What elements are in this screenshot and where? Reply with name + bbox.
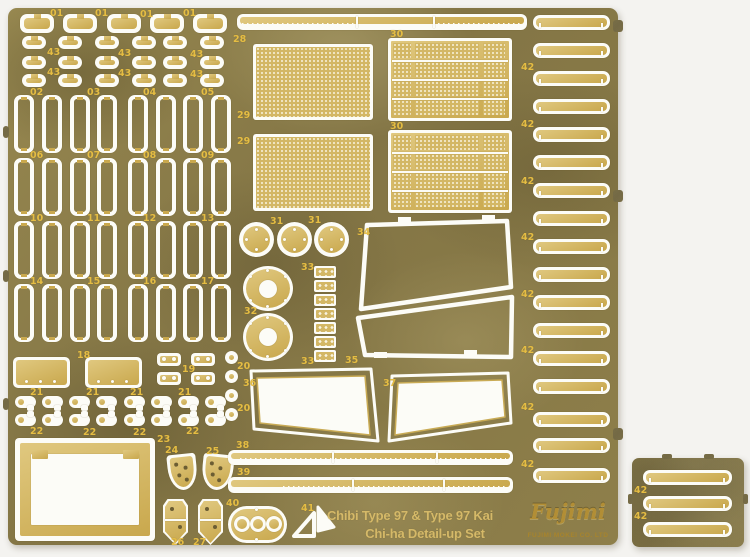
strip-42-tick <box>649 530 651 535</box>
washer-part-20 <box>225 389 238 402</box>
hook-part-21-eye <box>154 399 160 405</box>
strip-42-tick <box>539 303 541 308</box>
strip-42-inner <box>536 326 607 335</box>
clip-part-43-notch <box>172 56 179 61</box>
oval-40-ring-center <box>253 519 263 529</box>
sprue-tab <box>613 428 623 440</box>
strip-part-42 <box>533 183 610 198</box>
panel-part-18 <box>85 357 142 388</box>
grille-30-cell <box>393 173 411 188</box>
part-label-30: 30 <box>390 122 403 131</box>
clip-part-43-notch <box>209 74 216 79</box>
hook-part-22-tail <box>217 411 224 417</box>
frame-part-14 <box>14 284 34 342</box>
mudguard-part-37-ring <box>389 373 511 441</box>
part-label-08: 08 <box>143 151 156 160</box>
part-label-33: 33 <box>301 263 314 272</box>
clip-part-43 <box>200 36 224 49</box>
sprue-tab <box>628 494 633 504</box>
part-label-20: 20 <box>237 404 250 413</box>
part-label-13: 13 <box>201 214 214 223</box>
grille-panel-part-30 <box>388 130 512 213</box>
strip-part-42 <box>643 522 732 537</box>
hook-part-21-eye <box>72 399 78 405</box>
grille-30-cell <box>483 100 505 115</box>
sprue-tab <box>3 270 9 282</box>
clip-part-43 <box>95 56 119 69</box>
part-label-22: 22 <box>83 428 96 437</box>
oval-32-rivet-hole <box>266 316 269 319</box>
ladder-part-33 <box>314 308 336 320</box>
part-label-26: 26 <box>171 538 184 547</box>
strip-42-inner <box>536 158 607 167</box>
clip-part-01-notch <box>121 14 128 19</box>
shield-part-26-slot <box>165 519 186 521</box>
clip-part-43 <box>58 74 82 87</box>
grille-30-slat-line <box>392 98 508 100</box>
strip-42-tick2 <box>723 504 725 509</box>
strip-42-tick <box>539 163 541 168</box>
shield-part-27-hole <box>205 507 209 511</box>
clip-part-43-notch <box>104 36 111 41</box>
sprue-tab <box>662 454 672 459</box>
strip-42-tick2 <box>601 135 603 140</box>
oval-32-center-hole <box>259 328 277 346</box>
part-label-40: 40 <box>226 499 239 508</box>
ladder-33-holes <box>316 296 334 304</box>
grille-30-cell <box>415 81 479 96</box>
oval-plate-part-32 <box>243 266 293 311</box>
oval-32-rivet-hole <box>266 269 269 272</box>
strip-42-tick <box>539 275 541 280</box>
hook-part-22-tail <box>190 411 197 417</box>
clip-19-hole <box>196 376 200 380</box>
part-label-42: 42 <box>521 403 534 412</box>
panel-18-rivet <box>125 380 128 383</box>
part-label-39: 39 <box>237 468 250 477</box>
hook-part-22-tail <box>163 411 170 417</box>
hook-part-21 <box>151 396 172 408</box>
clip-part-43-notch <box>104 56 111 61</box>
frame-part-06 <box>128 158 148 216</box>
disc-31-hole <box>265 238 268 241</box>
sprue-tab <box>704 454 714 459</box>
clip-part-01-inner <box>67 18 93 29</box>
main-fret-sheet: Chibi Type 97 & Type 97 Kai Chi-ha Detai… <box>8 8 618 545</box>
strip-42-tick2 <box>601 446 603 451</box>
grille-30-cell <box>483 154 505 169</box>
clip-19-hole2 <box>206 357 210 361</box>
frame-part-10 <box>211 221 231 279</box>
set-title-line2: Chi-ha Detail-up Set <box>350 526 500 541</box>
fender-35-notch <box>374 352 387 358</box>
washer-20-center <box>229 412 234 417</box>
ladder-part-33 <box>314 350 336 362</box>
part-label-12: 12 <box>143 214 156 223</box>
fender-35-notch <box>464 350 477 356</box>
grille-30-cell <box>415 43 479 58</box>
grille-30-cell <box>393 192 411 207</box>
clip-part-43-notch <box>31 36 38 41</box>
strip-42-inner <box>536 102 607 111</box>
fan-part-24 <box>166 453 199 492</box>
grille-30-cell <box>415 135 479 150</box>
part-label-35: 35 <box>345 356 358 365</box>
clip-part-01-inner <box>197 18 223 29</box>
clip-part-43-notch <box>209 56 216 61</box>
part-label-28: 28 <box>233 35 246 44</box>
strip-42-tick <box>649 478 651 483</box>
grille-30-cell <box>483 62 505 77</box>
saw-strip-part-38-teeth <box>240 458 506 463</box>
part-label-25: 25 <box>206 447 219 456</box>
hook-part-22 <box>69 414 90 426</box>
strip-42-inner <box>536 270 607 279</box>
part-label-42: 42 <box>634 486 647 495</box>
clip-part-43 <box>58 36 82 49</box>
ladder-part-33 <box>314 322 336 334</box>
saw-strip-part-28-teeth <box>433 23 522 28</box>
hook-part-22-tail <box>54 411 61 417</box>
oval-32-rivet-hole <box>266 305 269 308</box>
part-label-14: 14 <box>30 277 43 286</box>
photo-etch-set-photo: Chibi Type 97 & Type 97 Kai Chi-ha Detai… <box>0 0 750 557</box>
saw-strip-part-39-divider <box>352 479 354 491</box>
grille-30-slat-line <box>392 171 508 173</box>
saw-strip-part-28-divider <box>433 16 435 28</box>
frame-part-14 <box>156 284 176 342</box>
clip-19-hole <box>162 376 166 380</box>
saw-strip-part-28 <box>237 14 527 30</box>
part-label-42: 42 <box>521 460 534 469</box>
grille-30-cell <box>483 173 505 188</box>
hook-part-22-tail <box>108 411 115 417</box>
part-label-43: 43 <box>47 68 60 77</box>
strip-42-tick2 <box>601 387 603 392</box>
frame-part-06 <box>42 158 62 216</box>
hook-part-22-eye <box>99 417 105 423</box>
part-label-05: 05 <box>201 88 214 97</box>
clip-part-43 <box>163 36 187 49</box>
clip-part-43 <box>132 36 156 49</box>
clip-part-01-notch <box>164 14 171 19</box>
mudguard-part-36-ring <box>251 369 378 441</box>
part-label-22: 22 <box>133 428 146 437</box>
strip-42-inner <box>646 473 729 482</box>
hook-part-22-tail <box>27 411 34 417</box>
grille-30-cell <box>415 100 479 115</box>
clip-part-43 <box>22 56 46 69</box>
grille-30-slat-line <box>392 190 508 192</box>
grille-panel-part-30 <box>388 38 512 121</box>
strip-42-tick2 <box>723 478 725 483</box>
hook-part-21 <box>42 396 63 408</box>
disc-31-hole <box>245 238 248 241</box>
part-label-43: 43 <box>190 50 203 59</box>
strip-42-inner <box>536 74 607 83</box>
strip-42-tick <box>539 476 541 481</box>
grille-30-cell <box>483 135 505 150</box>
sprue-tab <box>3 398 9 410</box>
small-fret-sheet: 4242 <box>632 458 744 547</box>
part-label-30: 30 <box>390 30 403 39</box>
part-label-18: 18 <box>77 351 90 360</box>
ladder-33-holes <box>316 352 334 360</box>
ladder-part-33 <box>314 266 336 278</box>
grille-30-slat-line <box>392 79 508 81</box>
hook-part-22 <box>151 414 172 426</box>
hatch-23-hinge-tab <box>32 450 48 459</box>
clip-part-43-notch <box>67 56 74 61</box>
clip-part-43-notch <box>172 36 179 41</box>
strip-42-tick2 <box>601 219 603 224</box>
grille-30-cell <box>393 43 411 58</box>
clip-19-hole <box>162 357 166 361</box>
part-label-43: 43 <box>118 69 131 78</box>
strip-part-42 <box>533 71 610 86</box>
strip-part-42 <box>643 470 732 485</box>
strip-part-42 <box>533 15 610 30</box>
clip-part-43 <box>95 74 119 87</box>
part-label-36: 36 <box>243 379 256 388</box>
strip-part-42 <box>533 468 610 483</box>
strip-part-42 <box>533 239 610 254</box>
clip-part-43-notch <box>67 36 74 41</box>
grille-30-cell <box>483 81 505 96</box>
part-label-04: 04 <box>143 88 156 97</box>
frame-part-02 <box>14 95 34 153</box>
fujimi-company-caption: FUJIMI MOKEI CO. LTD <box>520 532 616 539</box>
disc-31-hole <box>330 248 333 251</box>
fujimi-logo: Fujimi <box>524 499 612 524</box>
part-label-42: 42 <box>521 346 534 355</box>
strip-42-tick2 <box>601 420 603 425</box>
strip-42-inner <box>536 415 607 424</box>
frame-part-02 <box>156 95 176 153</box>
part-label-42: 42 <box>521 177 534 186</box>
hook-part-22-eye <box>127 417 133 423</box>
strip-42-tick2 <box>601 51 603 56</box>
clip-part-43 <box>95 36 119 49</box>
disc-31-hole <box>303 238 306 241</box>
sprue-tab <box>613 190 623 202</box>
strip-42-inner <box>536 18 607 27</box>
mudguard-part-36-cutout <box>257 376 370 435</box>
clip-19-hole <box>196 357 200 361</box>
clip-part-01-notch <box>77 14 84 19</box>
disc-part-31 <box>277 222 312 257</box>
strip-part-42 <box>533 99 610 114</box>
clip-part-01-inner <box>154 18 180 29</box>
part-label-33: 33 <box>301 357 314 366</box>
clip-part-43 <box>132 56 156 69</box>
clip-part-01 <box>107 14 141 33</box>
frame-part-06 <box>70 158 90 216</box>
part-label-23: 23 <box>157 435 170 444</box>
clip-part-01-inner <box>24 18 50 29</box>
shield-part-27-slot <box>200 519 221 521</box>
strip-42-tick <box>539 107 541 112</box>
shield-part-26-hole <box>170 507 174 511</box>
ladder-33-holes <box>316 268 334 276</box>
clip-part-43-notch <box>141 56 148 61</box>
clip-part-43 <box>132 74 156 87</box>
strip-42-tick <box>539 420 541 425</box>
washer-20-center <box>229 355 234 360</box>
clip-part-01 <box>63 14 97 33</box>
strip-42-inner <box>646 499 729 508</box>
part-label-42: 42 <box>521 63 534 72</box>
hook-part-22-eye <box>45 417 51 423</box>
sprue-tab <box>3 126 9 138</box>
part-label-01: 01 <box>95 9 108 18</box>
ladder-33-holes <box>316 282 334 290</box>
mesh-panel-part-29 <box>253 44 373 120</box>
frame-part-06 <box>156 158 176 216</box>
part-label-42: 42 <box>521 120 534 129</box>
shield-part-26-hole2 <box>178 525 182 529</box>
strip-42-tick2 <box>601 247 603 252</box>
part-label-22: 22 <box>186 427 199 436</box>
saw-strip-part-28-divider <box>356 16 358 28</box>
oval-32-rivet-hole <box>249 299 252 302</box>
strip-42-tick <box>539 331 541 336</box>
strip-42-tick <box>539 359 541 364</box>
part-label-21: 21 <box>130 388 143 397</box>
grille-30-slat-line <box>392 60 508 62</box>
disc-31-hole <box>255 248 258 251</box>
panel-18-rivet <box>111 380 114 383</box>
part-label-20: 20 <box>237 362 250 371</box>
part-label-42: 42 <box>521 290 534 299</box>
oval-32-rivet-hole <box>266 355 269 358</box>
grille-30-cell <box>415 173 479 188</box>
grille-30-cell <box>483 192 505 207</box>
hook-part-22-eye <box>18 417 24 423</box>
disc-31-hole <box>320 238 323 241</box>
oval-32-rivet-hole <box>249 322 252 325</box>
grille-30-cell <box>393 135 411 150</box>
disc-31-hole <box>293 228 296 231</box>
clip-19-hole2 <box>206 376 210 380</box>
sprue-tab <box>613 20 623 32</box>
clip-part-43 <box>200 74 224 87</box>
strip-part-42 <box>533 155 610 170</box>
clip-part-43-notch <box>209 36 216 41</box>
hook-part-22 <box>178 414 199 426</box>
clip-part-43-notch <box>67 74 74 79</box>
panel-18-rivet <box>25 380 28 383</box>
oval-32-rivet-hole <box>249 349 252 352</box>
clip-part-43-notch <box>31 56 38 61</box>
oval-40-ring-center <box>237 519 247 529</box>
hook-part-22 <box>42 414 63 426</box>
hatch-23-hinge-tab <box>123 450 139 459</box>
strip-42-tick2 <box>601 476 603 481</box>
ladder-part-33 <box>314 294 336 306</box>
part-label-11: 11 <box>87 214 100 223</box>
clip-part-43-notch <box>141 74 148 79</box>
frame-part-10 <box>97 221 117 279</box>
frame-part-06 <box>211 158 231 216</box>
clip-part-43-notch <box>104 74 111 79</box>
strip-part-42 <box>533 379 610 394</box>
part-label-27: 27 <box>193 538 206 547</box>
panel-18-rivet <box>97 380 100 383</box>
part-label-42: 42 <box>521 233 534 242</box>
oval-32-rivet-hole <box>284 299 287 302</box>
fender-34-notch <box>398 217 411 223</box>
hook-part-22-tail <box>81 411 88 417</box>
strip-42-tick2 <box>601 23 603 28</box>
clip-part-43 <box>22 74 46 87</box>
part-label-21: 21 <box>178 388 191 397</box>
hatch-23-window <box>31 454 139 525</box>
mesh-29-grid <box>256 47 370 117</box>
fender-part-35-outline <box>358 297 512 357</box>
strip-part-42 <box>533 295 610 310</box>
strip-42-tick <box>539 446 541 451</box>
hook-part-22 <box>96 414 117 426</box>
strip-part-42 <box>533 267 610 282</box>
strip-42-tick <box>649 504 651 509</box>
oval-32-rivet-hole <box>284 275 287 278</box>
strip-42-tick <box>539 191 541 196</box>
part-label-34: 34 <box>357 228 370 237</box>
strip-42-tick2 <box>601 163 603 168</box>
triangle-part-41-outline <box>294 513 314 536</box>
strip-42-inner <box>536 298 607 307</box>
clip-part-43 <box>163 74 187 87</box>
saw-strip-part-39 <box>228 477 513 493</box>
strip-42-tick2 <box>601 303 603 308</box>
strip-42-inner <box>536 441 607 450</box>
frame-part-10 <box>183 221 203 279</box>
strip-42-inner <box>536 242 607 251</box>
strip-42-inner <box>646 525 729 534</box>
frame-part-14 <box>42 284 62 342</box>
part-label-03: 03 <box>87 88 100 97</box>
disc-31-hole <box>283 238 286 241</box>
frame-part-10 <box>14 221 34 279</box>
saw-strip-part-39-teeth <box>283 486 506 491</box>
saw-strip-part-28-teeth <box>242 23 356 28</box>
part-label-32: 32 <box>244 307 257 316</box>
strip-42-tick2 <box>601 331 603 336</box>
hook-part-22-eye <box>72 417 78 423</box>
part-label-01: 01 <box>50 9 63 18</box>
grille-30-cell <box>415 62 479 77</box>
hatch-frame-part-23 <box>15 438 155 541</box>
hook-part-21-eye <box>208 399 214 405</box>
strip-42-inner <box>536 471 607 480</box>
ladder-33-holes <box>316 310 334 318</box>
disc-31-hole <box>255 228 258 231</box>
frame-part-14 <box>128 284 148 342</box>
clip-part-43 <box>22 36 46 49</box>
hook-part-21-eye <box>99 399 105 405</box>
part-label-17: 17 <box>201 277 214 286</box>
hook-part-22-eye <box>181 417 187 423</box>
strip-42-tick2 <box>601 275 603 280</box>
disc-31-hole <box>340 238 343 241</box>
frame-part-02 <box>183 95 203 153</box>
part-label-07: 07 <box>87 151 100 160</box>
grille-30-cell <box>393 62 411 77</box>
oval-32-center-hole <box>259 280 277 298</box>
hook-part-22 <box>205 414 226 426</box>
frame-part-06 <box>14 158 34 216</box>
